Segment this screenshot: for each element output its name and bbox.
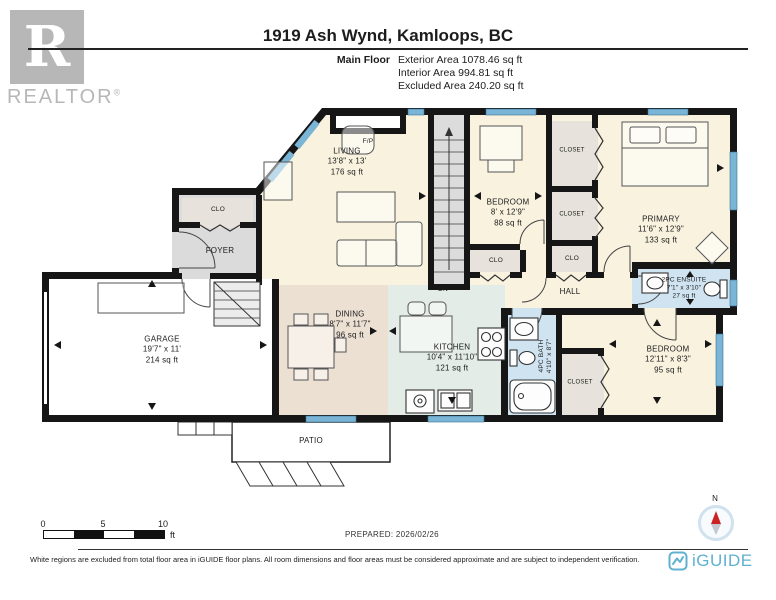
label-closet2: CLOSET	[559, 211, 584, 218]
scale-unit: ft	[170, 530, 175, 540]
scale-tick-5: 5	[100, 519, 105, 529]
garage-door	[44, 292, 47, 404]
scale-bar	[43, 530, 165, 539]
iguide-logo: iGUIDE	[668, 551, 753, 571]
label-fireplace: F/P	[363, 138, 374, 146]
garage-stairs	[214, 282, 260, 326]
footer-disclaimer: White regions are excluded from total fl…	[30, 555, 640, 564]
room-label-foyer: FOYER	[206, 246, 235, 256]
scale-tick-10: 10	[158, 519, 168, 529]
room-label-hall: HALL	[560, 287, 581, 297]
room-label-kitchen: KITCHEN 10'4" x 11'10" 121 sq ft	[427, 342, 478, 373]
scale-tick-0: 0	[40, 519, 45, 529]
label-clo-hall: CLO	[489, 257, 503, 265]
room-label-bath: 4PC BATH 4'10" x 8'7"	[538, 339, 554, 373]
label-closet-bedroom2: CLOSET	[567, 379, 592, 386]
room-label-garage: GARAGE 19'7" x 11' 214 sq ft	[143, 334, 181, 365]
label-closet1: CLOSET	[559, 147, 584, 154]
room-label-patio: PATIO	[299, 436, 323, 446]
floor-plan-drawing	[0, 0, 776, 600]
patio-deck	[178, 422, 390, 486]
room-label-bedroom-top: BEDROOM 8' x 12'9" 88 sq ft	[487, 197, 530, 228]
floorplan-sheet: R REALTOR® 1919 Ash Wynd, Kamloops, BC M…	[0, 0, 776, 600]
room-label-bedroom-bottom: BEDROOM 12'11" x 8'3" 95 sq ft	[645, 344, 691, 375]
iguide-logo-icon	[668, 551, 688, 571]
label-clo-column: CLO	[565, 255, 579, 263]
room-label-living: LIVING 13'8" x 13' 176 sq ft	[328, 146, 367, 177]
label-clo-foyer: CLO	[211, 206, 225, 214]
footer-rule	[78, 549, 748, 550]
room-label-primary: PRIMARY 11'6" x 12'9" 133 sq ft	[638, 214, 684, 245]
iguide-logo-text: iGUIDE	[692, 551, 753, 571]
label-stairs-down: DN	[438, 286, 448, 294]
room-label-ensuite: 2PC ENSUITE 7'1" x 3'10" 27 sq ft	[662, 276, 707, 299]
compass-north-label: N	[712, 494, 718, 503]
room-label-dining: DINING 8'7" x 11'7" 96 sq ft	[329, 309, 370, 340]
garage-furniture	[98, 283, 184, 313]
prepared-date: PREPARED: 2026/02/26	[345, 530, 439, 539]
compass-icon	[698, 505, 734, 541]
